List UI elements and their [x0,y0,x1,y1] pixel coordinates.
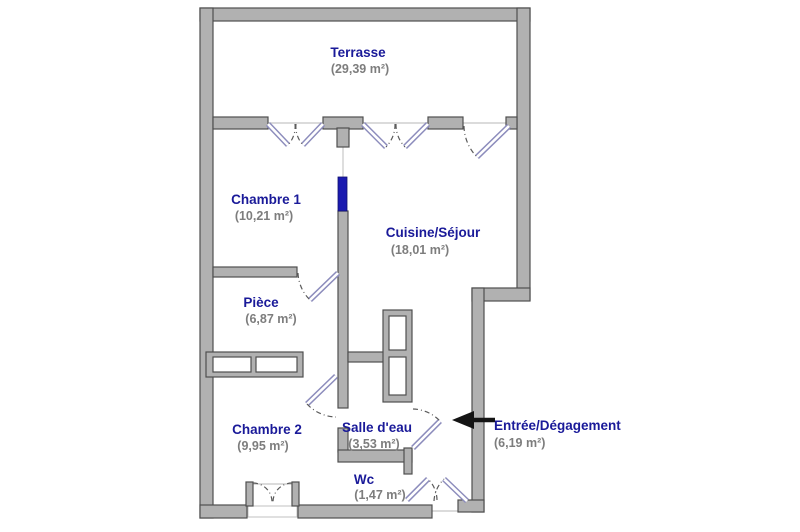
room-area-wc: (1,47 m²) [354,488,405,502]
room-area-salle-deau: (3,53 m²) [348,437,399,451]
sliding-door [338,177,347,211]
room-label-chambre2: Chambre 2 [232,422,302,437]
room-area-piece: (6,87 m²) [245,312,296,326]
wc-door [407,479,437,500]
terrace-door-2 [363,124,428,147]
room-cuisine: Cuisine/Séjour (18,01 m²) [386,225,481,257]
room-terrasse: Terrasse (29,39 m²) [330,45,389,76]
room-label-salle-deau: Salle d'eau [342,420,412,435]
room-label-terrasse: Terrasse [330,45,386,60]
room-area-chambre1: (10,21 m²) [235,209,293,223]
room-label-cuisine: Cuisine/Séjour [386,225,481,240]
room-chambre2: Chambre 2 (9,95 m²) [232,422,302,453]
chambre2-window [253,483,292,502]
terrace-door-3 [464,126,509,157]
room-area-entree: (6,19 m²) [494,436,545,450]
room-label-chambre1: Chambre 1 [231,192,301,207]
front-door [434,479,467,501]
entrance-arrow-icon [452,411,495,429]
piece-door [298,273,338,300]
salle-deau-door [413,409,440,448]
room-area-terrasse: (29,39 m²) [331,62,389,76]
room-chambre1: Chambre 1 (10,21 m²) [231,192,301,223]
room-wc: Wc (1,47 m²) [354,472,406,502]
room-label-piece: Pièce [243,295,279,310]
chambre2-door [307,376,336,417]
room-area-cuisine: (18,01 m²) [391,243,449,257]
terrace-door-1 [268,124,323,145]
room-area-chambre2: (9,95 m²) [237,439,288,453]
room-salle-deau: Salle d'eau (3,53 m²) [342,420,412,451]
room-entree: Entrée/Dégagement (6,19 m²) [494,418,621,450]
floor-plan: Terrasse (29,39 m²) Chambre 1 (10,21 m²)… [0,0,800,532]
floor-plan-svg: Terrasse (29,39 m²) Chambre 1 (10,21 m²)… [0,0,800,532]
room-label-entree: Entrée/Dégagement [494,418,621,433]
room-piece: Pièce (6,87 m²) [243,295,296,326]
room-label-wc: Wc [354,472,375,487]
